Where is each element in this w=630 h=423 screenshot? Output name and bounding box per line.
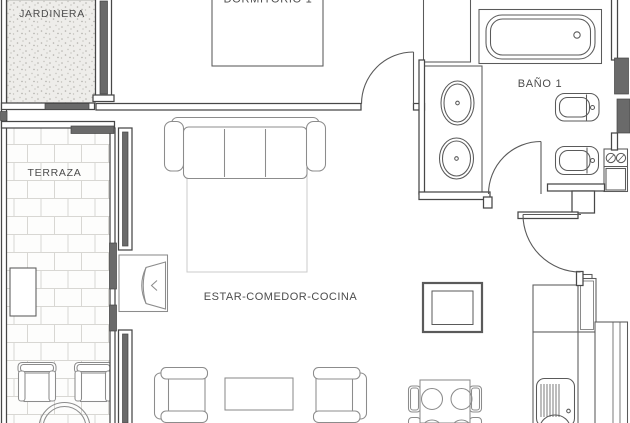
terrace-chair-icon [18, 363, 56, 402]
floor-plan-canvas: JARDINERA TERRAZA DORMITORIO 1 BAÑO 1 ES… [0, 0, 630, 423]
room-label-jardinera: JARDINERA [19, 8, 85, 20]
terrace-chair-icon [75, 363, 113, 402]
bidet-icon [556, 147, 599, 175]
wall [612, 133, 618, 150]
armchair-icon [314, 368, 367, 423]
room-label-bano: BAÑO 1 [518, 77, 563, 90]
vanity-sink-icon [424, 66, 482, 196]
window-glass [615, 58, 629, 94]
window-glass [100, 1, 108, 94]
toilet-icon [556, 94, 600, 122]
sofa-icon [165, 118, 326, 179]
wall [572, 191, 595, 213]
kitchen-sink-icon [537, 379, 575, 423]
wall [548, 184, 605, 191]
coffee-table-icon [225, 378, 293, 410]
sliding-door-panel [110, 243, 117, 289]
bed-icon [212, 0, 323, 66]
room-label-estar: ESTAR-COMEDOR-COCINA [204, 291, 358, 303]
sill-vent [71, 126, 114, 134]
window-glass [123, 334, 129, 423]
sliding-door-panel [110, 305, 117, 331]
armchair-icon [155, 368, 208, 423]
wall [484, 197, 493, 208]
wall [2, 0, 7, 423]
wall [419, 192, 490, 200]
sill-vent [45, 104, 89, 110]
shaft-column-icon [423, 283, 482, 332]
wall [612, 0, 618, 60]
washer-icon [604, 149, 628, 192]
planter-box-icon [10, 268, 36, 316]
room-label-dormitorio: DORMITORIO 1 [224, 0, 313, 6]
tv-console-icon [119, 255, 168, 312]
window-sill [93, 95, 114, 102]
wall [419, 60, 425, 194]
wall [518, 212, 578, 219]
wall [577, 272, 584, 286]
room-label-terraza: TERRAZA [28, 167, 82, 179]
kitchen-counter-icon [595, 322, 628, 423]
floor-plan: JARDINERA TERRAZA DORMITORIO 1 BAÑO 1 ES… [0, 0, 630, 423]
dining-chair-icon [470, 418, 482, 423]
dining-chair-icon [409, 418, 421, 423]
window-glass [123, 132, 129, 246]
dining-table-icon [420, 380, 470, 423]
wall-tick [1, 112, 8, 121]
wall [96, 104, 361, 111]
bathtub-icon [479, 10, 602, 64]
window-glass [617, 99, 630, 133]
kitchen-cabinet-icon [533, 285, 578, 332]
closet-niche-icon [424, 0, 471, 62]
